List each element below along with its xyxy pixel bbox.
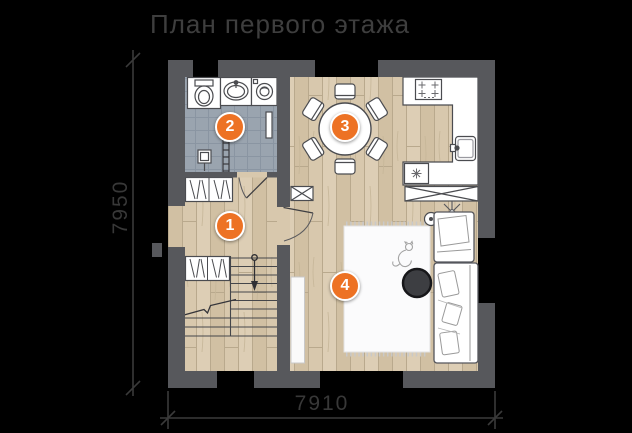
armchair: [434, 212, 474, 262]
wall-segment: [403, 371, 495, 388]
wall-segment: [168, 371, 217, 388]
toilet: [188, 78, 221, 109]
console-table-small: [291, 187, 313, 201]
floor-plan-canvas: [0, 0, 632, 433]
coffee-table: [403, 269, 431, 297]
wardrobe: [186, 178, 233, 202]
wall-segment: [254, 371, 320, 388]
radiator-panel: [291, 277, 305, 363]
wall-segment: [168, 247, 185, 388]
towel-rail: [266, 112, 272, 138]
wall-segment: [478, 60, 495, 238]
interior-wall: [277, 245, 290, 371]
dimension-label-bottom: 7910: [282, 392, 362, 416]
wall-segment: [168, 60, 185, 206]
sofa: [434, 263, 478, 363]
dining-chair: [335, 159, 355, 174]
appliance: [405, 164, 429, 184]
wardrobe: [186, 257, 230, 281]
wall-segment: [378, 60, 495, 77]
dining-chair: [335, 84, 355, 99]
console-table: [405, 187, 478, 202]
room-marker-4: 4: [330, 271, 360, 301]
dimension-label-left: 7950: [109, 172, 133, 242]
stove: [416, 80, 442, 100]
room-marker-3: 3: [330, 112, 360, 142]
room-marker-1: 1: [215, 211, 245, 241]
washing-machine: [252, 78, 278, 106]
room-marker-2: 2: [215, 112, 245, 142]
wall-segment: [218, 60, 315, 77]
bathroom-sink: [221, 78, 252, 106]
floor-plan-image: План первого этажа: [0, 0, 632, 433]
porch-wall-stub: [152, 243, 162, 257]
interior-wall: [277, 77, 290, 207]
entry-nook-floor: [168, 206, 186, 247]
